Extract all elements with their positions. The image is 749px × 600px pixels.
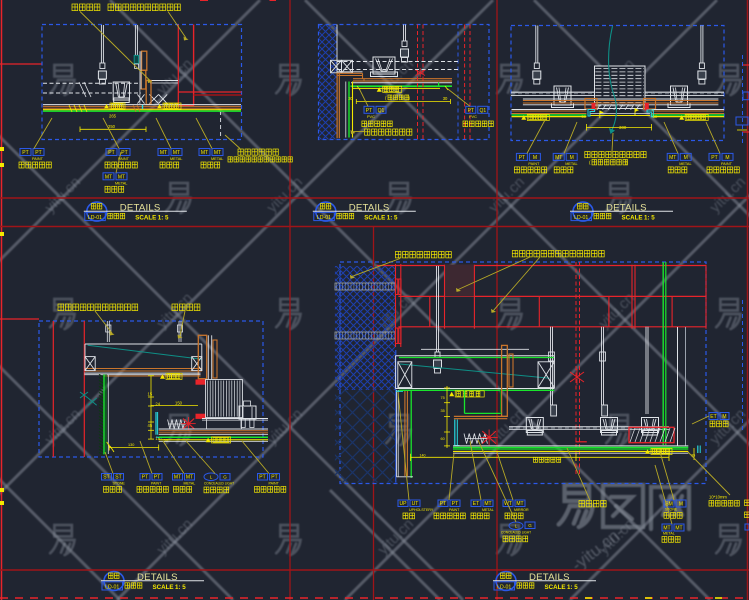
- svg-text:1: 5: 1: 5: [387, 215, 398, 222]
- svg-text:SCALE: SCALE: [364, 215, 385, 222]
- svg-text:300: 300: [619, 125, 627, 130]
- svg-text:LD-01: LD-01: [574, 215, 588, 221]
- svg-text:LD-01: LD-01: [105, 584, 119, 590]
- svg-text:PT: PT: [121, 150, 127, 156]
- svg-text:M: M: [725, 155, 729, 161]
- svg-text:60: 60: [441, 437, 445, 441]
- svg-text:265: 265: [109, 113, 117, 118]
- svg-text:PT: PT: [35, 150, 41, 156]
- svg-text:LD-01: LD-01: [497, 584, 511, 590]
- svg-text:PAINT: PAINT: [151, 481, 162, 485]
- svg-text:CONCEALED LIGHT: CONCEALED LIGHT: [204, 481, 234, 485]
- svg-text:STONE: STONE: [113, 481, 126, 485]
- svg-text:PAINT: PAINT: [721, 162, 733, 166]
- svg-text:250: 250: [108, 124, 116, 129]
- svg-text:G: G: [223, 474, 227, 479]
- svg-text:G: G: [528, 523, 532, 528]
- svg-text:DETAILS: DETAILS: [349, 202, 390, 213]
- svg-text:METAL: METAL: [184, 481, 196, 485]
- svg-text:PT: PT: [22, 150, 28, 156]
- svg-text:75: 75: [441, 396, 445, 400]
- svg-text:MT: MT: [516, 501, 523, 507]
- svg-text:MT: MT: [484, 501, 491, 507]
- svg-text:PT: PT: [519, 155, 525, 161]
- svg-text:PVC: PVC: [367, 115, 375, 119]
- svg-text:MT: MT: [174, 475, 181, 481]
- svg-text:PT: PT: [108, 150, 114, 156]
- svg-text:PT: PT: [440, 501, 446, 507]
- svg-text:PT: PT: [154, 475, 160, 481]
- svg-text:M: M: [570, 155, 574, 161]
- svg-text:SCALE: SCALE: [153, 584, 174, 591]
- svg-text:1: 5: 1: 5: [158, 215, 169, 222]
- svg-text:PT: PT: [452, 501, 458, 507]
- svg-text:1: 5: 1: 5: [644, 215, 655, 222]
- svg-text:MT: MT: [160, 150, 167, 156]
- svg-text:METAL: METAL: [482, 508, 494, 512]
- svg-text:SCALE: SCALE: [545, 584, 566, 591]
- svg-text:LD-01: LD-01: [88, 215, 102, 221]
- svg-text:PT: PT: [711, 155, 717, 161]
- svg-text:MT: MT: [555, 155, 562, 161]
- svg-text:MT: MT: [675, 526, 682, 532]
- svg-text:METAL: METAL: [679, 162, 691, 166]
- svg-text:DETAILS: DETAILS: [137, 572, 178, 583]
- svg-text:PT: PT: [366, 108, 372, 114]
- svg-text:MT: MT: [105, 174, 112, 180]
- svg-text:PAINT: PAINT: [32, 157, 44, 161]
- svg-text:10*10mm: 10*10mm: [709, 495, 727, 500]
- svg-text:UPHOLSTERY: UPHOLSTERY: [409, 508, 434, 512]
- svg-text:MT: MT: [201, 150, 208, 156]
- svg-text:SCALE: SCALE: [135, 215, 156, 222]
- svg-text:ST: ST: [103, 475, 109, 481]
- svg-text:METAL: METAL: [663, 532, 675, 536]
- svg-text:SCALE: SCALE: [622, 215, 643, 222]
- svg-text:MT: MT: [173, 150, 180, 156]
- svg-text:MT: MT: [214, 150, 221, 156]
- svg-text:30: 30: [348, 96, 353, 101]
- svg-text:METAL: METAL: [115, 181, 127, 185]
- svg-text:PAINT: PAINT: [449, 508, 460, 512]
- svg-text:M: M: [533, 155, 537, 161]
- svg-text:MIRROR: MIRROR: [514, 508, 529, 512]
- svg-text:50: 50: [582, 114, 587, 119]
- svg-text:1: 5: 1: 5: [175, 584, 186, 591]
- svg-text:DETAILS: DETAILS: [606, 202, 647, 213]
- svg-text:M: M: [679, 502, 683, 508]
- svg-text:DETAILS: DETAILS: [529, 572, 570, 583]
- svg-text:UT: UT: [412, 501, 419, 507]
- svg-text:45: 45: [148, 423, 153, 428]
- svg-text:MT: MT: [186, 475, 193, 481]
- svg-text:MT: MT: [118, 174, 125, 180]
- svg-text:MT: MT: [669, 155, 676, 161]
- svg-text:PT: PT: [271, 475, 277, 481]
- svg-text:CONCEALED LIGHT: CONCEALED LIGHT: [501, 531, 531, 535]
- svg-text:DETAILS: DETAILS: [120, 202, 161, 213]
- svg-text:1: 5: 1: 5: [567, 584, 578, 591]
- svg-text:15: 15: [148, 391, 153, 396]
- svg-text:140: 140: [420, 453, 426, 457]
- svg-text:ST: ST: [115, 475, 121, 481]
- svg-text:150: 150: [175, 400, 183, 405]
- svg-text:STONE: STONE: [665, 508, 678, 512]
- svg-text:METAL: METAL: [565, 162, 577, 166]
- svg-text:M: M: [684, 155, 688, 161]
- svg-text:130: 130: [128, 443, 134, 447]
- svg-text:30: 30: [443, 96, 448, 101]
- svg-text:METAL: METAL: [170, 157, 182, 161]
- svg-text:ET: ET: [710, 414, 716, 420]
- svg-text:LD-01: LD-01: [317, 215, 331, 221]
- svg-text:PAINT: PAINT: [528, 162, 540, 166]
- svg-text:35: 35: [441, 409, 445, 413]
- svg-text:Q1: Q1: [378, 108, 385, 114]
- svg-text:PT: PT: [259, 475, 265, 481]
- svg-text:50: 50: [653, 114, 658, 119]
- svg-text:PT: PT: [142, 475, 148, 481]
- svg-text:PAINT: PAINT: [269, 481, 280, 485]
- svg-text:M: M: [722, 414, 726, 420]
- svg-text:ET: ET: [473, 501, 479, 507]
- svg-text:UP: UP: [400, 501, 408, 507]
- svg-text:METAL: METAL: [211, 157, 223, 161]
- svg-text:PVC: PVC: [469, 115, 477, 119]
- svg-text:PT: PT: [468, 108, 474, 114]
- svg-text:Q1: Q1: [479, 108, 486, 114]
